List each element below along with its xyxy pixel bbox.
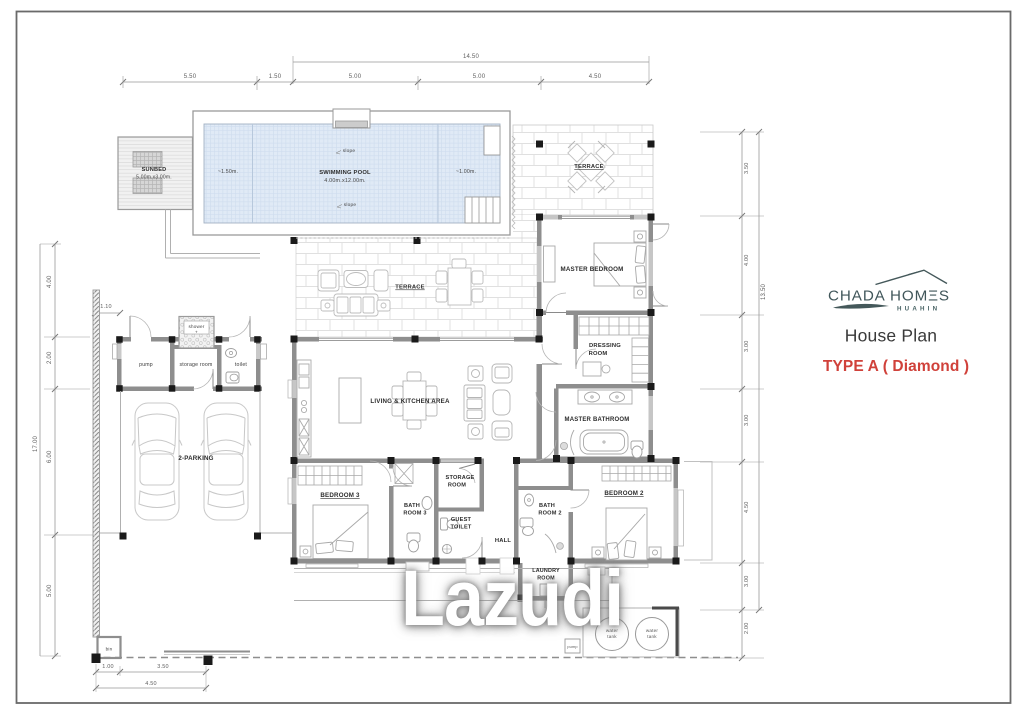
- svg-text:water: water: [646, 628, 659, 633]
- svg-text:5.00: 5.00: [473, 74, 486, 80]
- svg-text:CHADA HOMΞS: CHADA HOMΞS: [828, 288, 950, 305]
- svg-text:slope: slope: [344, 202, 357, 208]
- svg-text:+: +: [195, 330, 198, 335]
- svg-text:SWIMMING POOL: SWIMMING POOL: [319, 170, 371, 176]
- svg-text:pump: pump: [567, 645, 577, 649]
- svg-text:BATH: BATH: [404, 503, 420, 509]
- svg-text:4.50: 4.50: [744, 501, 750, 513]
- svg-text:17.00: 17.00: [33, 436, 39, 452]
- svg-text:4.00: 4.00: [744, 254, 750, 266]
- svg-text:1.10: 1.10: [100, 304, 112, 310]
- svg-text:5.00: 5.00: [349, 74, 362, 80]
- svg-text:1.50: 1.50: [269, 74, 282, 80]
- svg-text:4.50: 4.50: [145, 681, 157, 687]
- svg-text:DRESSING: DRESSING: [589, 343, 621, 349]
- svg-text:6.00: 6.00: [47, 450, 53, 463]
- svg-text:4.00: 4.00: [47, 275, 53, 288]
- svg-text:slope: slope: [343, 148, 356, 154]
- svg-text:~1.00m.: ~1.00m.: [456, 169, 476, 175]
- svg-text:BEDROOM 3: BEDROOM 3: [320, 492, 360, 499]
- svg-text:TOILET: TOILET: [451, 525, 472, 531]
- svg-text:2.00: 2.00: [47, 351, 53, 364]
- svg-text:pump: pump: [139, 362, 153, 368]
- svg-text:3.50: 3.50: [744, 162, 750, 174]
- svg-text:13.50: 13.50: [761, 284, 767, 300]
- svg-text:TERRACE: TERRACE: [395, 285, 424, 291]
- svg-text:14.50: 14.50: [463, 54, 479, 60]
- svg-text:STORAGE: STORAGE: [446, 475, 475, 481]
- svg-text:~1.50m.: ~1.50m.: [218, 169, 238, 175]
- svg-text:4.50: 4.50: [589, 74, 602, 80]
- svg-text:3.00: 3.00: [744, 414, 750, 426]
- svg-text:BEDROOM 2: BEDROOM 2: [604, 490, 644, 497]
- svg-text:2.00: 2.00: [744, 622, 750, 634]
- svg-text:SUNBED: SUNBED: [142, 167, 167, 173]
- svg-text:TERRACE: TERRACE: [574, 164, 603, 170]
- svg-text:GUEST: GUEST: [451, 517, 472, 523]
- svg-text:tank: tank: [647, 634, 657, 639]
- svg-text:TYPE A ( Diamond ): TYPE A ( Diamond ): [823, 358, 969, 375]
- svg-text:storage room: storage room: [180, 362, 213, 368]
- svg-text:3.00: 3.00: [744, 575, 750, 587]
- svg-text:MASTER BEDROOM: MASTER BEDROOM: [561, 266, 624, 273]
- svg-text:HUAHIN: HUAHIN: [897, 306, 940, 313]
- svg-text:2-PARKING: 2-PARKING: [178, 455, 213, 462]
- svg-text:BATH: BATH: [539, 503, 555, 509]
- svg-text:3.00: 3.00: [744, 340, 750, 352]
- svg-text:ROOM: ROOM: [448, 483, 466, 489]
- svg-text:3.50: 3.50: [157, 664, 169, 670]
- svg-text:bin: bin: [106, 647, 113, 652]
- svg-text:5.00m.x3.00m.: 5.00m.x3.00m.: [136, 175, 172, 181]
- svg-text:MASTER BATHROOM: MASTER BATHROOM: [565, 417, 630, 423]
- svg-text:toilet: toilet: [235, 362, 248, 368]
- svg-text:LIVING & KITCHEN AREA: LIVING & KITCHEN AREA: [370, 398, 450, 405]
- svg-text:5.00: 5.00: [47, 584, 53, 597]
- svg-text:ROOM 2: ROOM 2: [538, 511, 561, 517]
- svg-text:4.00m.x12.00m.: 4.00m.x12.00m.: [324, 178, 365, 184]
- svg-text:HALL: HALL: [495, 538, 512, 544]
- svg-text:House Plan: House Plan: [845, 326, 937, 346]
- svg-text:shower: shower: [188, 324, 204, 329]
- svg-text:1.00: 1.00: [102, 664, 114, 670]
- svg-text:ROOM 3: ROOM 3: [403, 511, 426, 517]
- svg-text:5.50: 5.50: [184, 74, 197, 80]
- svg-text:ROOM: ROOM: [589, 351, 608, 357]
